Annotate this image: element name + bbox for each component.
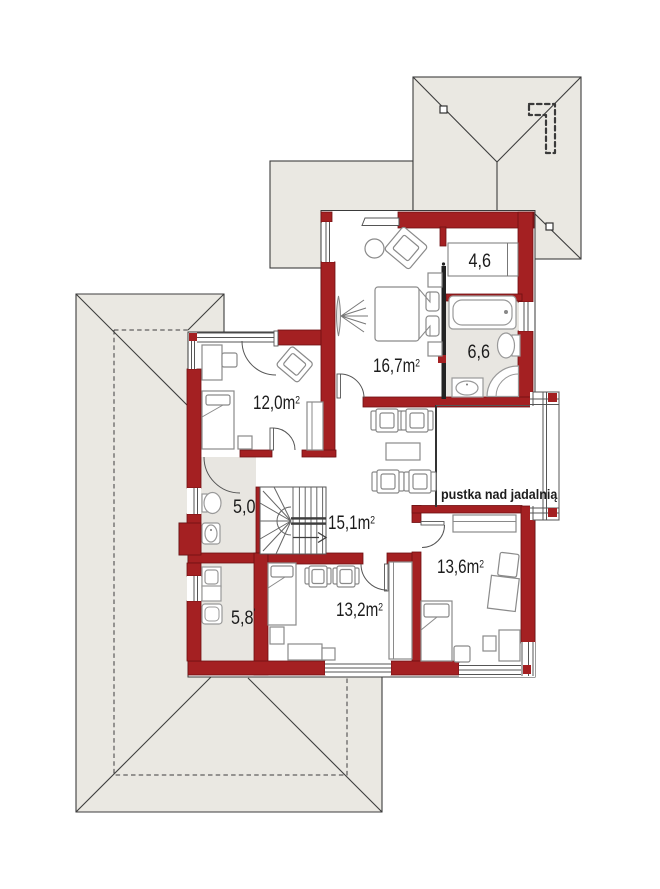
svg-text:5,8': 5,8' <box>231 607 255 629</box>
svg-text:5,0: 5,0 <box>233 496 256 518</box>
svg-text:12,0m2: 12,0m2 <box>253 391 300 413</box>
svg-text:15,1m2: 15,1m2 <box>328 511 375 533</box>
svg-text:pustka nad jadalnią: pustka nad jadalnią <box>441 487 558 503</box>
svg-text:13,2m2: 13,2m2 <box>336 598 383 620</box>
svg-text:13,6m2: 13,6m2 <box>437 555 484 577</box>
svg-text:6,6: 6,6 <box>468 341 491 363</box>
svg-text:4,6: 4,6 <box>469 250 492 272</box>
svg-text:16,7m2: 16,7m2 <box>373 354 420 376</box>
